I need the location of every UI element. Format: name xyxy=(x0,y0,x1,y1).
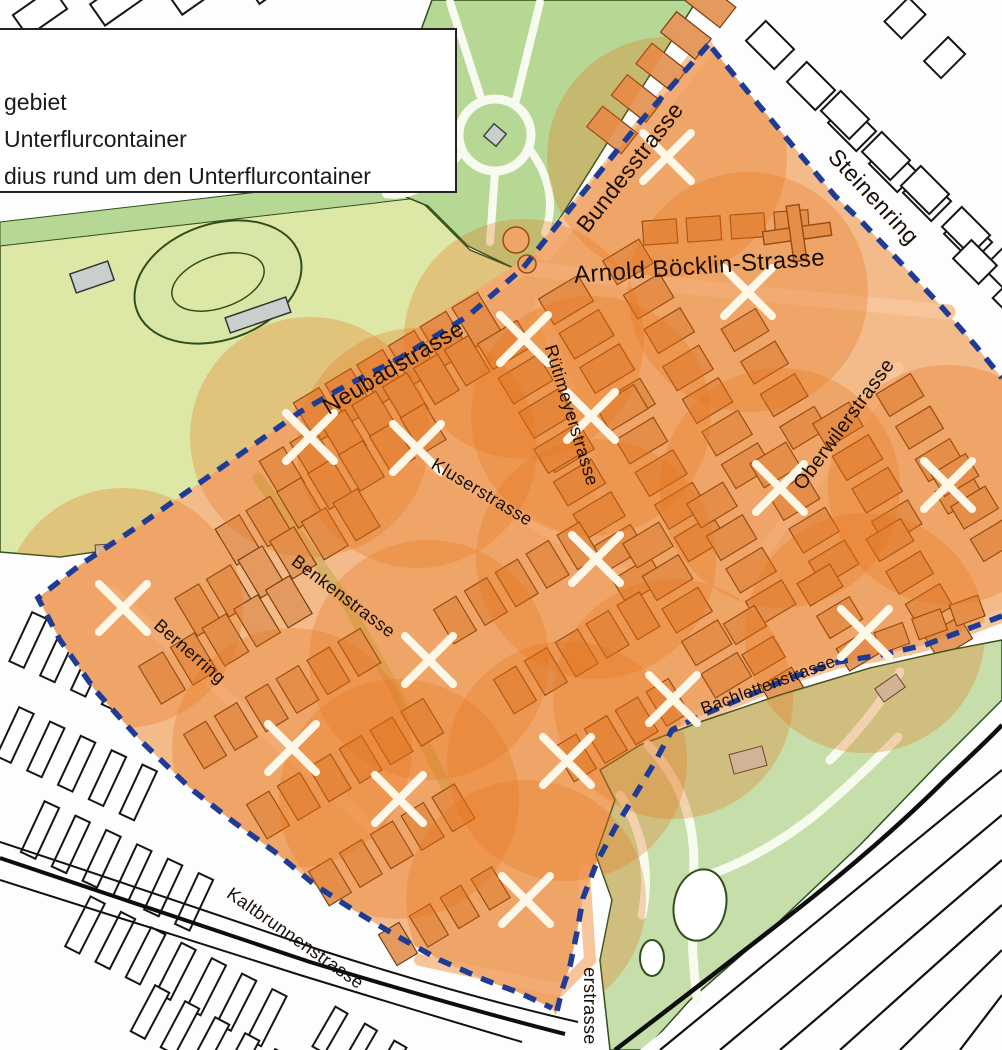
legend-panel: gebiet Unterflurcontainer dius rund um d… xyxy=(0,28,457,193)
legend-item-pilot-area: gebiet xyxy=(4,84,455,121)
legend-item-container: Unterflurcontainer xyxy=(4,121,455,158)
map-screenshot: BundesstrasseSteinenringArnold Böcklin-S… xyxy=(0,0,1002,1050)
legend-item-radius: dius rund um den Unterflurcontainer xyxy=(4,158,455,195)
street-label: erstrasse xyxy=(580,967,600,1045)
